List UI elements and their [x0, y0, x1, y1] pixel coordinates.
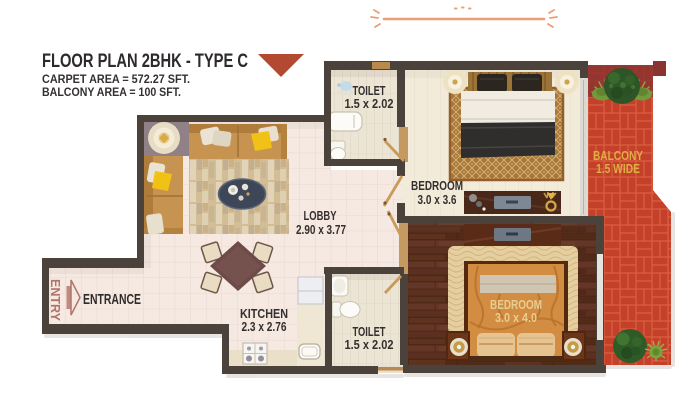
svg-text:3.0 x 3.6: 3.0 x 3.6	[418, 192, 457, 207]
svg-text:2.3 x 2.76: 2.3 x 2.76	[242, 319, 287, 334]
svg-text:BEDROOM: BEDROOM	[411, 178, 463, 193]
svg-text:FLOOR PLAN 2BHK - TYPE C: FLOOR PLAN 2BHK - TYPE C	[42, 51, 248, 72]
svg-text:BALCONY AREA = 100 SFT.: BALCONY AREA = 100 SFT.	[42, 87, 181, 99]
svg-text:CARPET AREA = 572.27 SFT.: CARPET AREA = 572.27 SFT.	[42, 74, 190, 86]
svg-text:2.90 x 3.77: 2.90 x 3.77	[296, 222, 346, 237]
svg-text:1.5 x 2.02: 1.5 x 2.02	[345, 96, 394, 111]
svg-text:1.5 WIDE: 1.5 WIDE	[596, 161, 640, 176]
svg-text:ENTRANCE: ENTRANCE	[83, 292, 141, 308]
svg-text:ENTRY: ENTRY	[48, 279, 63, 321]
svg-text:3.0 x 4.0: 3.0 x 4.0	[495, 310, 537, 325]
svg-text:1.5 x 2.02: 1.5 x 2.02	[345, 337, 394, 352]
svg-text:LOBBY: LOBBY	[304, 208, 337, 223]
